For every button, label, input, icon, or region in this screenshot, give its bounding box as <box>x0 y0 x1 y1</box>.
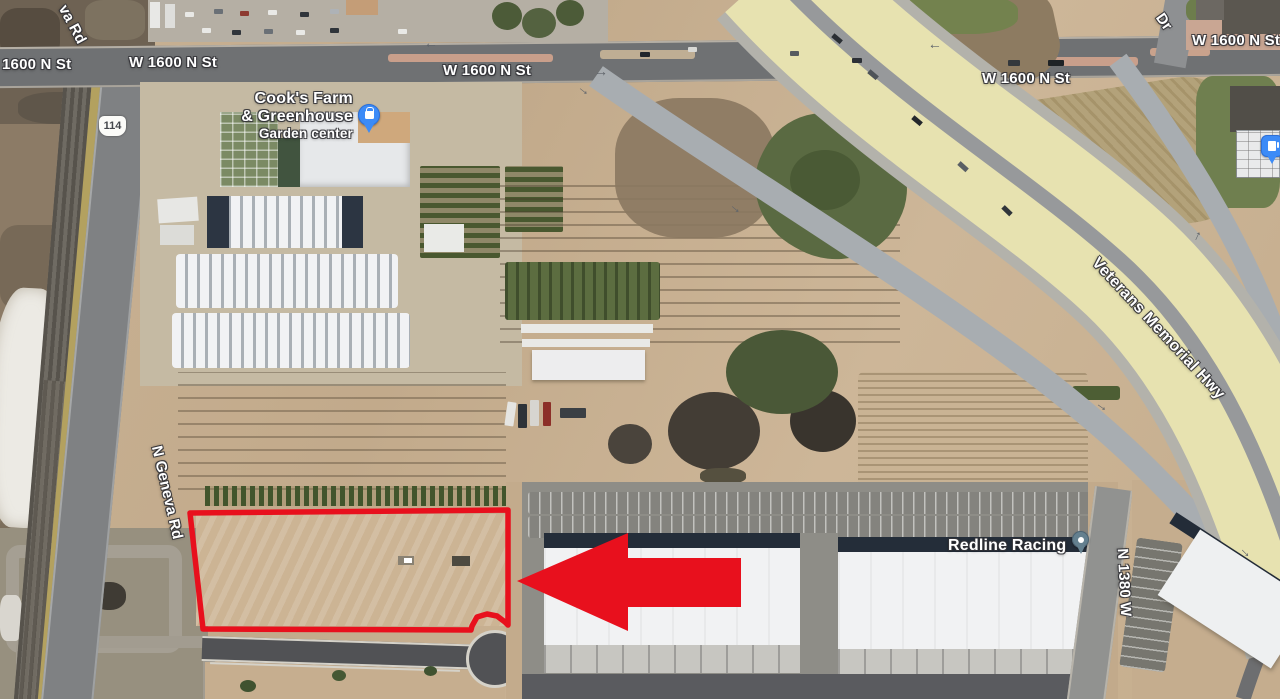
highlight-arrow-annotation <box>517 533 741 631</box>
vehicle <box>790 51 799 56</box>
pin-tail <box>1267 155 1277 164</box>
road-arrow-icon: → <box>928 42 942 56</box>
gas-pump-icon <box>1268 141 1276 151</box>
vehicle <box>852 58 862 63</box>
gas-station-pin-icon[interactable] <box>1261 135 1280 164</box>
road-label-w-1600-n-st: W 1600 N St <box>129 54 217 71</box>
pin-tail <box>1077 546 1085 554</box>
road-label-w-1600-n-st: W 1600 N St <box>1192 32 1280 49</box>
place-label-cooks-farm[interactable]: Cook's Farm & Greenhouse Garden center <box>195 90 353 141</box>
vehicle <box>688 47 697 52</box>
cooks-farm-line3: Garden center <box>195 126 353 141</box>
place-pin-icon[interactable] <box>1072 531 1089 554</box>
cooks-farm-line1: Cook's Farm <box>195 90 353 108</box>
vehicle <box>1008 60 1020 66</box>
road-label-w-1600-n-st: 1600 N St <box>2 56 71 73</box>
shopping-pin-ball <box>358 104 380 126</box>
shopping-pin-icon[interactable] <box>358 104 380 133</box>
satellite-map[interactable]: → → → → → → → → 1600 N St W 1600 N St W … <box>0 0 1280 699</box>
vehicle-bus <box>1048 60 1064 66</box>
annotation-overlay <box>0 0 1280 699</box>
road-label-w-1600-n-st: W 1600 N St <box>982 70 1070 87</box>
vehicle <box>640 52 650 57</box>
cooks-farm-line2: & Greenhouse <box>195 108 353 126</box>
gas-pin-ball <box>1261 135 1280 157</box>
road-label-w-1600-n-st: W 1600 N St <box>443 62 531 79</box>
pin-tail <box>364 124 374 133</box>
road-arrow-icon: → <box>424 41 438 55</box>
shopping-bag-icon <box>365 111 374 119</box>
property-boundary-annotation <box>190 510 508 630</box>
place-label-redline-racing[interactable]: Redline Racing <box>948 537 1066 555</box>
pin-dot-icon <box>1078 537 1084 543</box>
road-arrow-icon: → <box>594 64 608 78</box>
route-shield-114: 114 <box>99 116 126 136</box>
